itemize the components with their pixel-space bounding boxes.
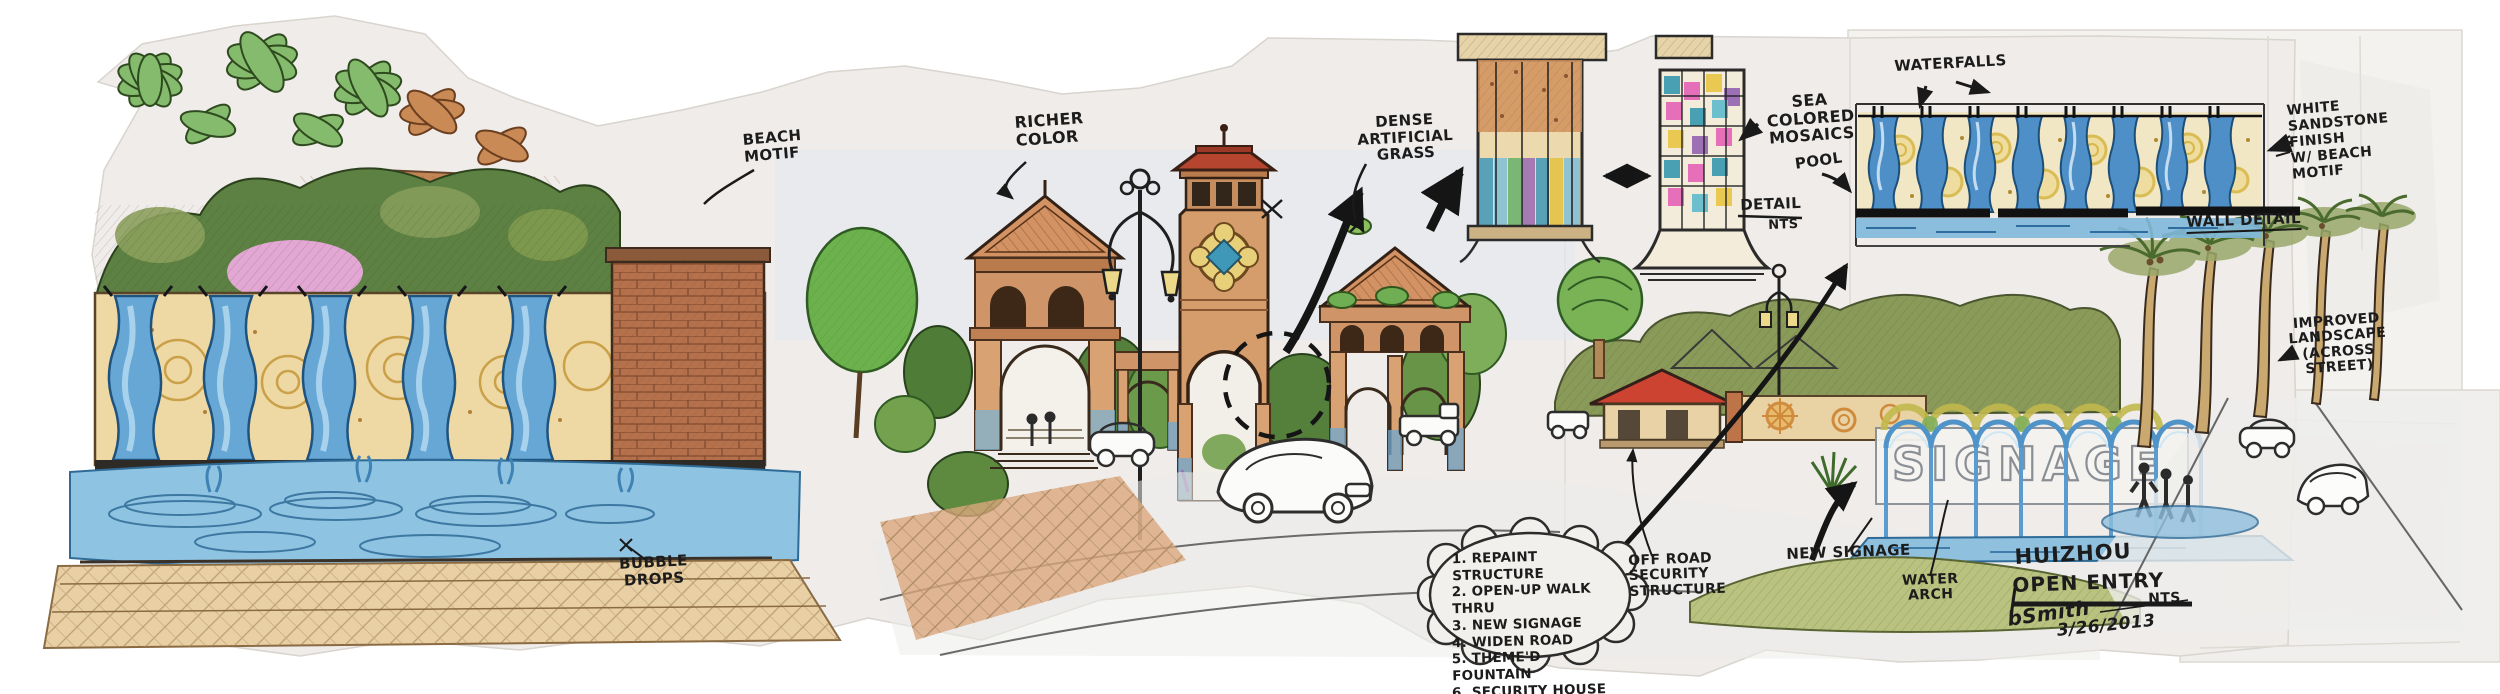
label-improved-landscape: IMPROVED LANDSCAPE (ACROSS STREET) [2280,310,2396,379]
concept-sketch-canvas: SIGNAGE [0,0,2500,694]
label-water-arch: WATER ARCH [1898,572,1963,605]
label-white-sandstone-finish: WHITE SANDSTONE FINISH W/ BEACH MOTIF [2286,96,2385,183]
label-detail: DETAIL [1740,195,1801,214]
label-beach-motif: BEACH MOTIF [742,127,804,165]
label-richer-color: RICHER COLOR [1014,109,1085,149]
title-scale: NTS [2148,591,2181,608]
label-wall-detail: WALL DETAIL [2186,210,2301,233]
title-sheet-name: OPEN ENTRY [2012,569,2165,596]
note-item-1: 1. REPAINT STRUCTURE [1452,547,1621,585]
label-dense-artificial-grass: DENSE ARTIFICIAL GRASS [1336,109,1474,166]
label-off-road-security: OFF ROAD SECURITY STRUCTURE [1628,550,1742,600]
revision-notes-list: 1. REPAINT STRUCTURE 2. OPEN-UP WALK THR… [1452,549,1620,694]
label-sea-colored-mosaics: SEA COLORED MOSAICS [1748,87,1873,148]
label-bubble-drops: BUBBLE DROPS [616,552,692,589]
note-item-5: 5. THEME'D FOUNTAIN [1452,647,1621,685]
gate-tower [1174,124,1274,500]
label-detail-scale: NTS [1768,218,1799,233]
note-item-2: 2. OPEN-UP WALK THRU [1452,580,1621,618]
